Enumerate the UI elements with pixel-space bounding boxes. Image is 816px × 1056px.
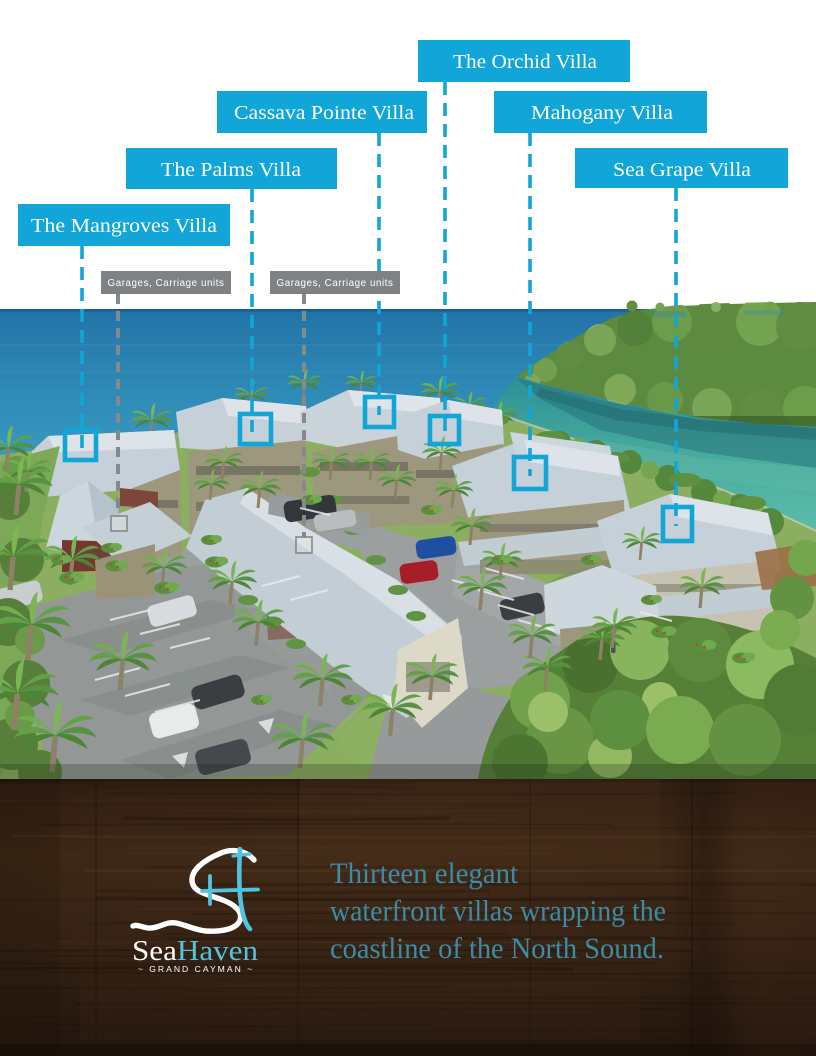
svg-text:Garages, Carriage units: Garages, Carriage units <box>277 277 394 289</box>
svg-text:Sea Grape Villa: Sea Grape Villa <box>613 159 751 181</box>
svg-text:~ GRAND CAYMAN ~: ~ GRAND CAYMAN ~ <box>138 964 254 974</box>
svg-text:coastline of the North Sound.: coastline of the North Sound. <box>330 932 664 965</box>
svg-text:The Orchid Villa: The Orchid Villa <box>453 51 597 73</box>
svg-text:Thirteen elegant: Thirteen elegant <box>330 857 519 890</box>
svg-text:Cassava Pointe Villa: Cassava Pointe Villa <box>234 102 414 124</box>
svg-text:Mahogany Villa: Mahogany Villa <box>531 102 673 124</box>
svg-text:Garages, Carriage units: Garages, Carriage units <box>108 277 225 289</box>
svg-text:SeaHaven: SeaHaven <box>132 935 259 967</box>
svg-text:The Palms Villa: The Palms Villa <box>161 159 301 181</box>
svg-text:waterfront villas wrapping the: waterfront villas wrapping the <box>330 895 666 928</box>
svg-text:The Mangroves Villa: The Mangroves Villa <box>31 215 217 237</box>
